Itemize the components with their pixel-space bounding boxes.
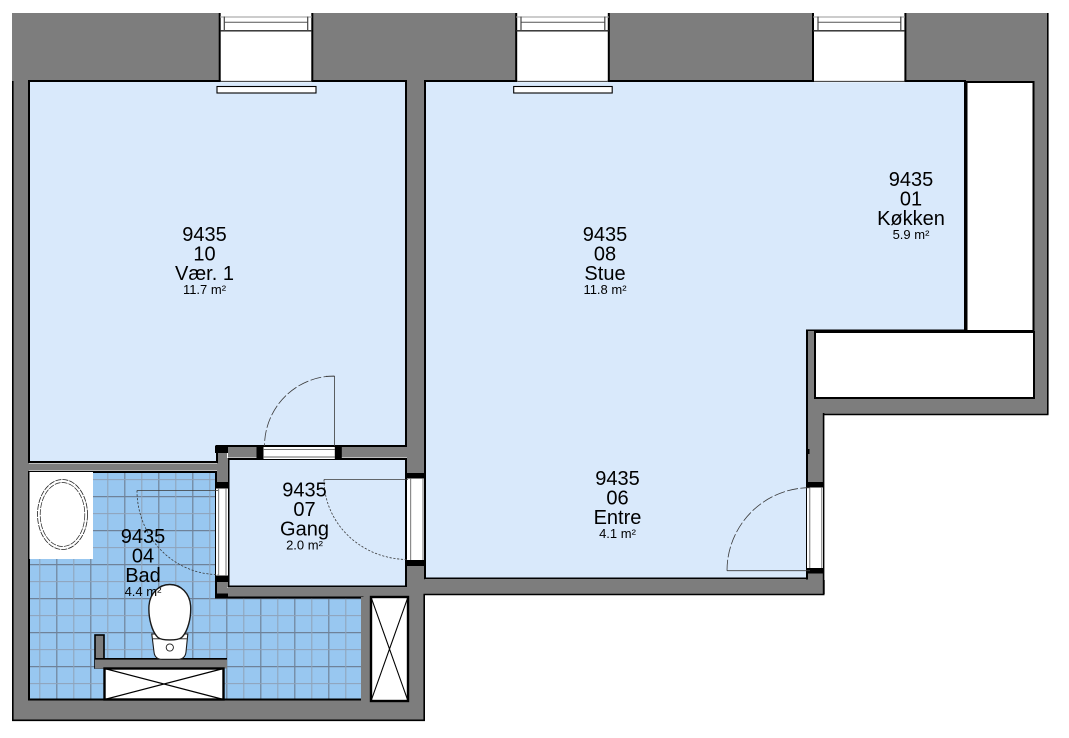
svg-text:4.1 m²: 4.1 m² [599,526,637,541]
svg-text:5.9 m²: 5.9 m² [893,227,931,242]
svg-text:11.7 m²: 11.7 m² [183,282,227,297]
svg-text:11.8 m²: 11.8 m² [583,282,627,297]
svg-text:2.0 m²: 2.0 m² [286,538,324,553]
svg-text:4.4 m²: 4.4 m² [125,584,163,599]
